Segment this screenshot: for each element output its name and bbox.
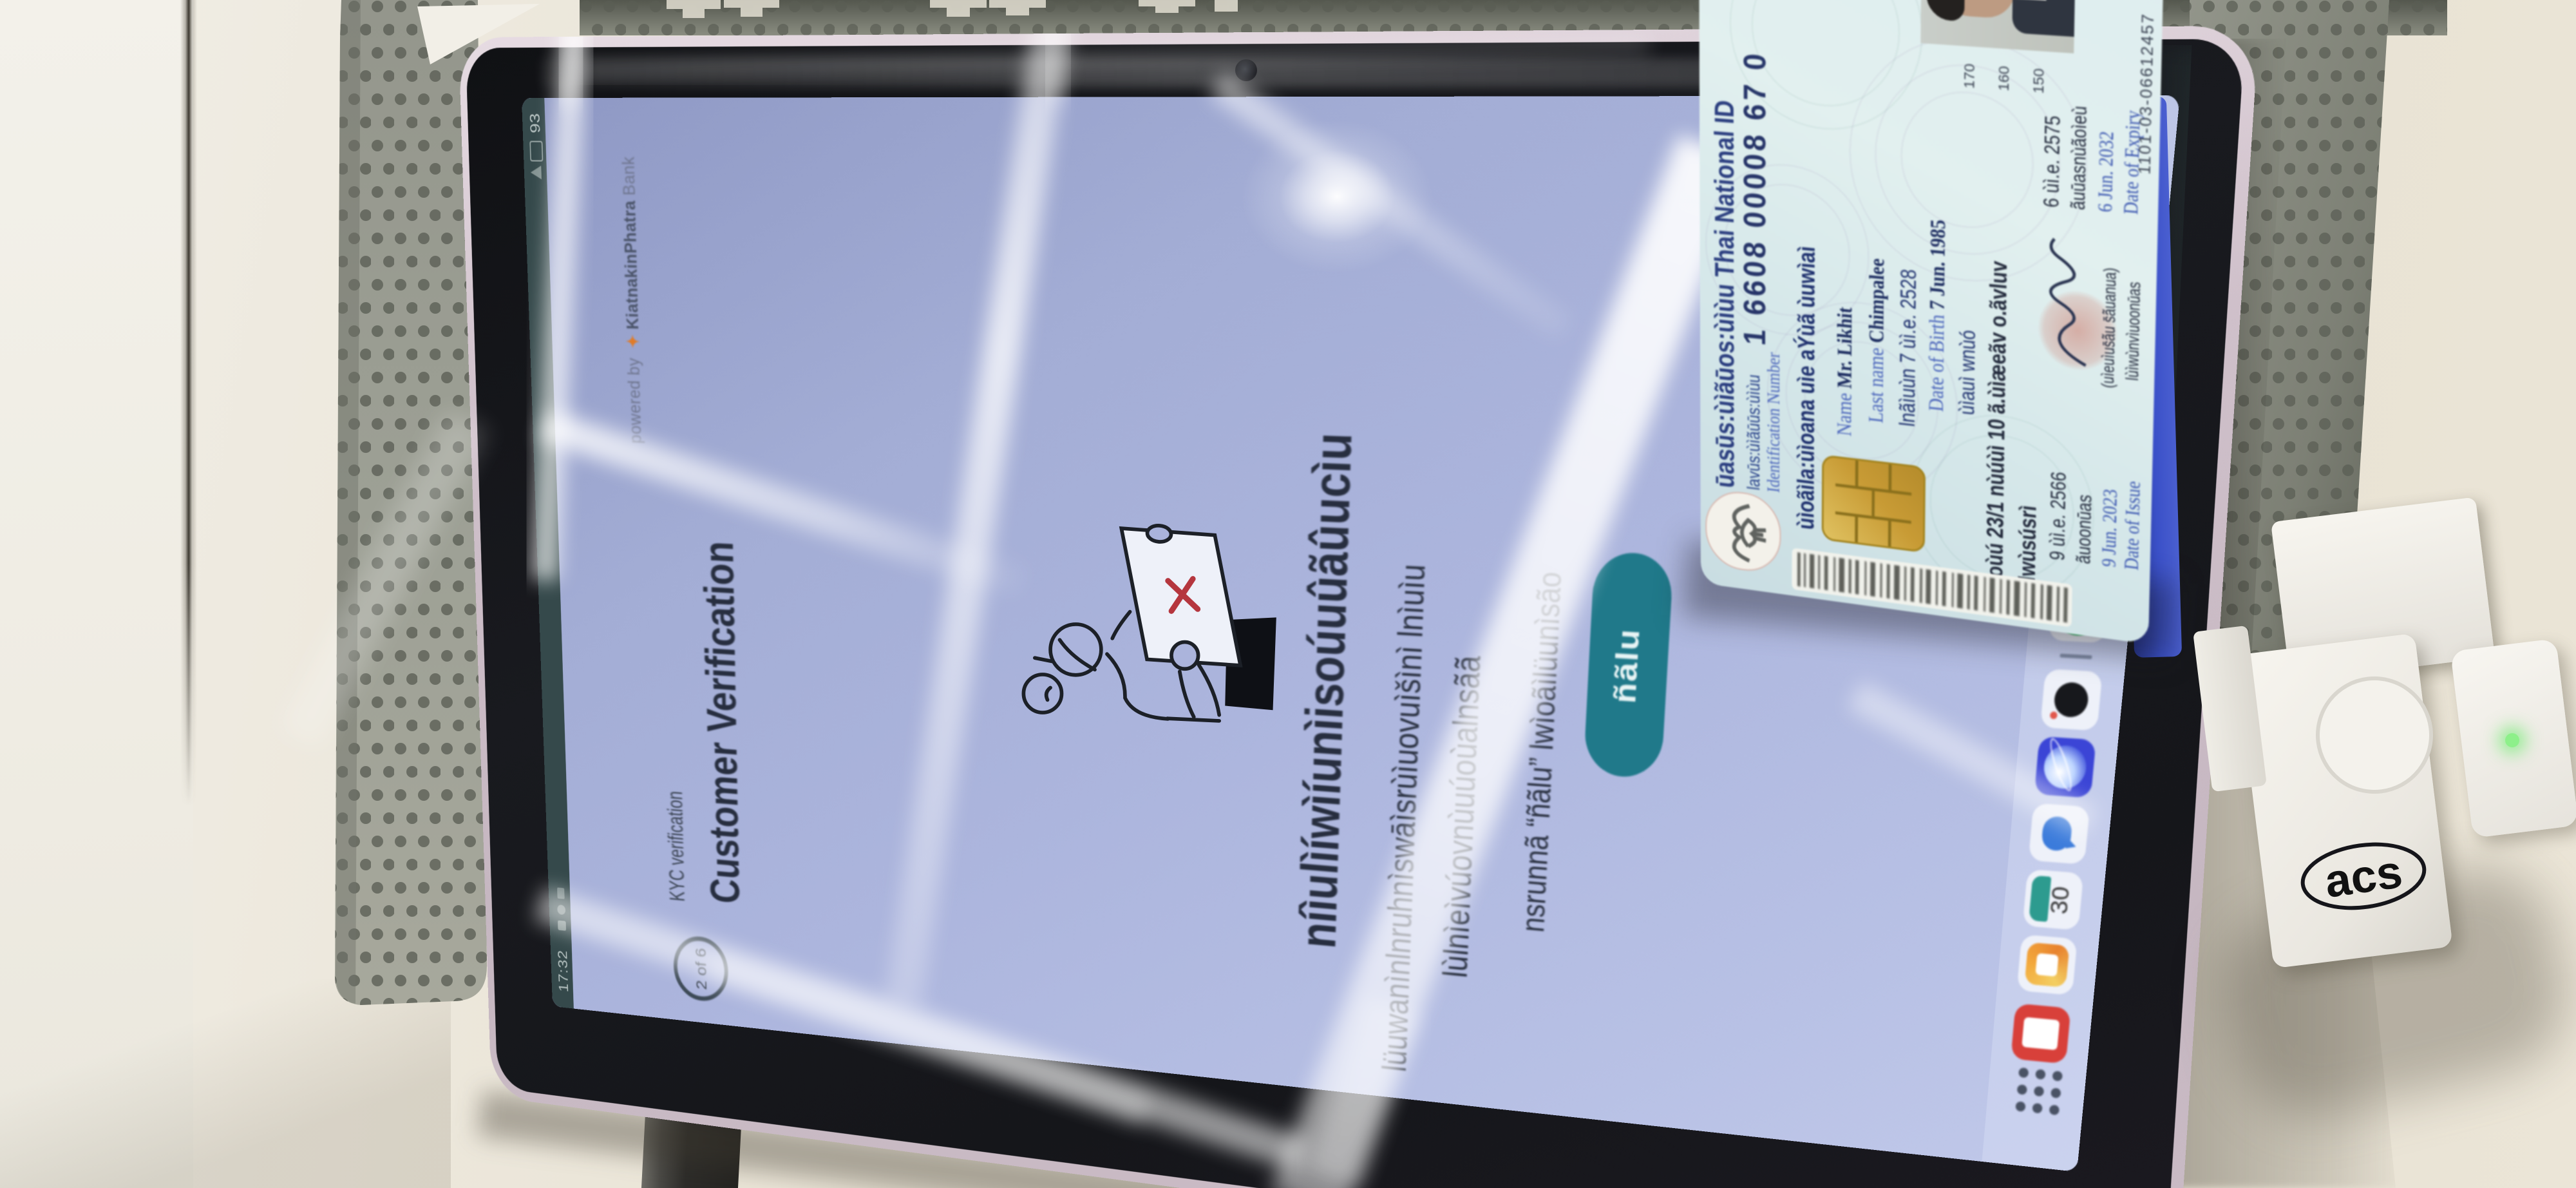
svg-text:acs: acs	[2322, 846, 2405, 908]
